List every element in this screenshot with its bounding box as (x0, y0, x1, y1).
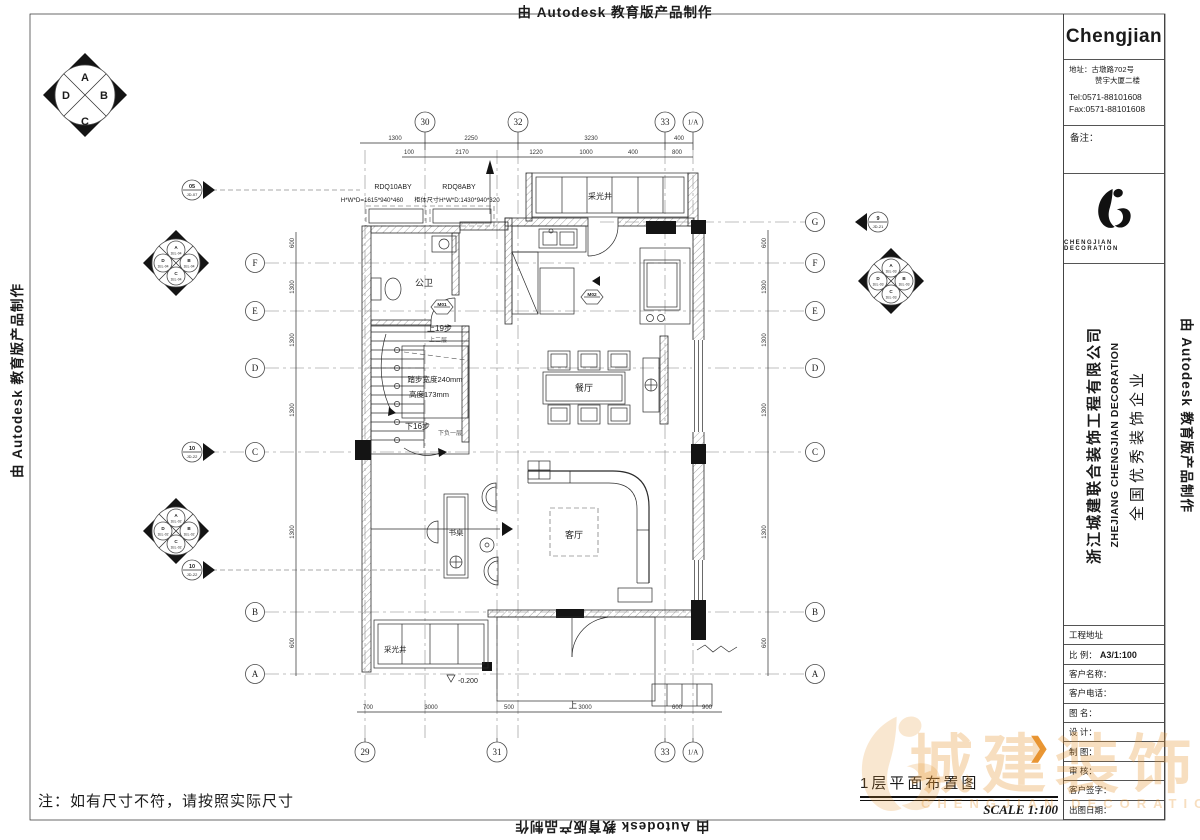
grid-label: E (252, 306, 258, 316)
dim-text: 1000 (579, 150, 593, 156)
section-code: JD-22 (187, 454, 198, 459)
row-label: 客户签字： (1069, 784, 1112, 796)
company-address-block: 地址：古墩路702号 赞宇大厦二楼 Tel:0571-88101608 Fax:… (1064, 60, 1164, 126)
cabinet-annotations: RDQ10ABY RDQ8ABY H*W*D=1615*940*460 柜体尺寸… (341, 184, 500, 226)
table-row: 客户电话： (1064, 684, 1164, 703)
section-code: JD-22 (187, 572, 198, 577)
table-row: 图 名： (1064, 704, 1164, 723)
grid-label: F (812, 258, 817, 268)
table-row: 工程地址 (1064, 626, 1164, 645)
grid-label: A (812, 669, 819, 679)
drawing-title-block: 1层平面布置图 SCALE 1:100 (860, 772, 1058, 818)
dim-text: 100 (404, 150, 415, 156)
section-code: JD-21 (873, 224, 884, 229)
skylight-bottom: 采光井 (374, 620, 488, 668)
dim-text: 600 (290, 237, 296, 248)
drawing-scale: SCALE 1:100 (860, 800, 1058, 818)
section-code: JD-07 (187, 192, 198, 197)
dimension-chain-left: 600 1300 1300 1300 1300 600 (290, 232, 296, 676)
grid-bubbles-top: 30 32 33 1/A (415, 112, 703, 150)
table-row: 制 图： (1064, 742, 1164, 761)
dim-text: 400 (628, 150, 639, 156)
table-row: 比 例：A3/1:100 (1064, 645, 1164, 664)
company-name-en: ZHEJIANG CHENGJIAN DECORATION (1109, 342, 1121, 547)
grid-label: G (812, 217, 819, 227)
grid-label: 33 (661, 117, 671, 127)
chengjian-logo-icon (1092, 186, 1136, 236)
dim-text: 600 (762, 637, 768, 648)
elevation-key-main: A B C D (43, 53, 127, 137)
drawing-sheet: 由 Autodesk 教育版产品制作 由 Autodesk 教育版产品制作 由 … (0, 0, 1200, 840)
grid-label: 1/A (688, 119, 699, 127)
dim-text: 800 (672, 150, 683, 156)
door-tag-m01: M01 (431, 300, 453, 314)
room-label-desk: 书桌 (449, 527, 464, 537)
sheet-frame (30, 14, 1165, 820)
tel: Tel:0571-88101608 (1069, 91, 1159, 104)
grid-label: 1/A (688, 749, 699, 757)
row-label: 审 核： (1069, 765, 1097, 777)
row-label: 客户电话： (1069, 687, 1112, 699)
address-line2: 赞宇大厦二楼 (1069, 75, 1159, 86)
section-num: 05 (189, 184, 195, 190)
elev-code: 1EL-03 (886, 296, 897, 300)
entry-up-label: 上 (569, 700, 578, 710)
grid-bubbles-left: F E D C B A (246, 254, 265, 684)
table-row: 出图日期： (1064, 801, 1164, 820)
grid-label: E (812, 306, 818, 316)
dim-text: 500 (504, 705, 515, 711)
stair-upto-label: 上二层 (429, 336, 447, 344)
stair-up-label: 上19步 (427, 324, 452, 333)
section-num: 10 (189, 446, 195, 452)
room-label-living: 客厅 (565, 529, 583, 540)
grid-label: D (812, 363, 819, 373)
dim-text: 1300 (290, 280, 296, 294)
row-value: A3/1:100 (1100, 650, 1137, 660)
stair-downto-label: 下负一层 (438, 429, 462, 437)
elev-code: 1EL-04 (171, 278, 182, 282)
section-num: 9 (876, 216, 879, 222)
remarks-field: 备注： (1064, 126, 1164, 174)
elev-code: 1EL-04 (171, 252, 182, 256)
drawing-title: 1层平面布置图 (860, 772, 1058, 798)
elev-letter: C (81, 116, 89, 128)
logo-caption: CHENGJIAN DECORATION (1064, 240, 1164, 252)
dim-text: 1300 (762, 525, 768, 539)
dimension-chain-right: 600 1300 1300 1300 1300 600 (762, 230, 768, 676)
company-logo-box: CHENGJIAN DECORATION (1064, 174, 1164, 264)
dim-text: 600 (290, 637, 296, 648)
skylight-top: 采光井 (532, 173, 688, 217)
section-marker-4: 9 JD-21 (855, 212, 888, 232)
elev-code: 1EL-03 (899, 283, 910, 287)
company-name-vertical: 浙江城建联合装饰工程有限公司 ZHEJIANG CHENGJIAN DECORA… (1064, 264, 1164, 626)
stair-riser-label: 高度173mm (409, 389, 449, 399)
dim-text: 2170 (455, 150, 469, 156)
elev-code: 1EL-02 (171, 546, 182, 550)
room-label-dining: 餐厅 (575, 382, 593, 393)
section-num: 10 (189, 564, 195, 570)
room-label-skylight-top: 采光井 (588, 191, 612, 201)
grid-label: C (812, 447, 818, 457)
floor-plan-canvas: .ln{stroke:#2b2b2b;stroke-width:.7;fill:… (0, 0, 1200, 840)
table-row: 客户签字： (1064, 781, 1164, 800)
dimension-note: 注：如有尺寸不符，请按照实际尺寸 (38, 790, 294, 811)
grid-label: B (252, 607, 258, 617)
dim-text: 1300 (290, 525, 296, 539)
door-label: M02 (587, 292, 597, 298)
elev-letter: A (81, 72, 89, 84)
staircase: 上19步 上二层 踏步宽度240mm 高度173mm 下16步 下负一层 (371, 324, 469, 457)
dim-text: 1300 (762, 403, 768, 417)
grid-label: 31 (493, 747, 502, 757)
company-name-cn: 浙江城建联合装饰工程有限公司 (1083, 326, 1104, 564)
cabinet-model: RDQ8ABY (442, 184, 476, 191)
elev-code: 1EL-03 (873, 283, 884, 287)
cabinet-size: 柜体尺寸H*W*D:1430*940*320 (414, 196, 500, 204)
elevation-key-3: A 1EL-03 B 1EL-03 C 1EL-03 D 1EL-03 (858, 248, 924, 314)
row-label: 出图日期： (1069, 804, 1112, 816)
elevation-key-2: A 1EL-02 B 1EL-02 C 1EL-02 D 1EL-02 (143, 498, 209, 564)
elev-code: 1EL-02 (158, 533, 169, 537)
cabinet-model: RDQ10ABY (374, 184, 412, 191)
dim-text: 2250 (464, 136, 478, 142)
grid-label: F (252, 258, 257, 268)
section-marker-2: 10 JD-22 (182, 442, 215, 462)
table-row: 设 计： (1064, 723, 1164, 742)
bathroom: 公卫 M01 (371, 236, 456, 322)
dim-text: 3000 (424, 705, 438, 711)
stair-down-label: 下16步 (405, 422, 430, 431)
company-slogan: 全国优秀装饰企业 (1126, 369, 1147, 521)
row-label: 客户名称： (1069, 668, 1112, 680)
elev-code: 1EL-04 (158, 265, 169, 269)
elev-letter: B (100, 90, 108, 102)
fax: Fax:0571-88101608 (1069, 103, 1159, 116)
cabinet-size: H*W*D=1615*940*460 (341, 197, 404, 204)
dim-text: 1220 (529, 150, 543, 156)
room-label-skylight-bottom: 采光井 (384, 644, 407, 654)
grid-label: 30 (421, 117, 431, 127)
dim-text: 1300 (762, 333, 768, 347)
living-room: 客厅 书桌 (371, 461, 652, 602)
section-marker-1: 05 JD-07 (182, 180, 360, 200)
grid-label: A (252, 669, 259, 679)
title-block-table: 工程地址 比 例：A3/1:100 客户名称： 客户电话： 图 名： 设 计： … (1064, 626, 1164, 820)
row-label: 制 图： (1069, 746, 1097, 758)
grid-label: B (812, 607, 818, 617)
dim-text: 1300 (290, 333, 296, 347)
grid-bubbles-right: G F E D C B A (806, 213, 825, 684)
table-row: 客户名称： (1064, 665, 1164, 684)
dim-text: 400 (674, 136, 685, 142)
grid-label: 32 (514, 117, 523, 127)
row-label: 比 例： (1069, 649, 1097, 661)
door-tag-m02: M02 (581, 290, 603, 304)
title-block: Chengjian 地址：古墩路702号 赞宇大厦二楼 Tel:0571-881… (1063, 14, 1165, 820)
elev-code: 1EL-02 (171, 520, 182, 524)
row-label: 设 计： (1069, 726, 1097, 738)
row-label: 图 名： (1069, 707, 1097, 719)
table-row: 审 核： (1064, 762, 1164, 781)
grid-label: 29 (361, 747, 371, 757)
dim-text: 1300 (762, 280, 768, 294)
grid-bubbles-bottom: 29 31 33 1/A (355, 738, 703, 762)
door-label: M01 (437, 302, 447, 308)
room-label-bath: 公卫 (415, 278, 433, 288)
dim-text: 3230 (584, 136, 598, 142)
grid-label: C (252, 447, 258, 457)
kitchen: M02 (512, 226, 690, 324)
company-brand: Chengjian (1064, 14, 1164, 60)
elev-code: 1EL-04 (184, 265, 195, 269)
elev-code: 1EL-02 (184, 533, 195, 537)
elevation-key-1: A 1EL-04 B 1EL-04 C 1EL-04 D 1EL-04 (143, 230, 209, 296)
dim-text: 3000 (578, 705, 592, 711)
level-label: -0.200 (458, 678, 478, 685)
address-line1: 地址：古墩路702号 (1069, 64, 1159, 75)
grid-label: 33 (661, 747, 671, 757)
dim-text: 1300 (388, 136, 402, 142)
section-marker-3: 10 JD-22 (182, 560, 440, 580)
dim-text: 1300 (290, 403, 296, 417)
dim-text: 700 (363, 705, 374, 711)
dining-room: 餐厅 (543, 351, 659, 424)
row-label: 工程地址 (1069, 629, 1103, 641)
dim-text: 600 (762, 237, 768, 248)
grid-label: D (252, 363, 259, 373)
dimension-chain-top: 1300 2250 3230 400 100 2170 1220 1000 40… (360, 136, 693, 157)
elev-letter: D (62, 90, 70, 102)
stair-tread-label: 踏步宽度240mm (407, 374, 462, 384)
elev-code: 1EL-03 (886, 270, 897, 274)
